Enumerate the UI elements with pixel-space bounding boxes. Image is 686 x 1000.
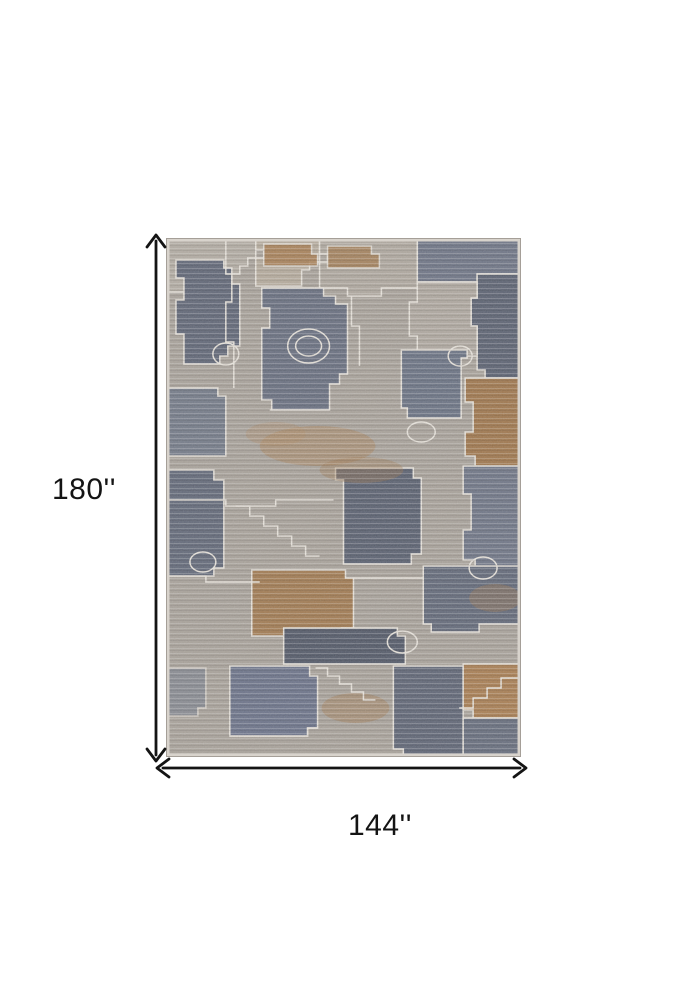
width-dimension-arrow — [157, 759, 526, 777]
product-dimension-diagram: 180'' 144'' — [0, 0, 686, 1000]
height-dimension-label: 180'' — [42, 472, 126, 508]
rug-image — [166, 238, 521, 757]
width-dimension-label: 144'' — [338, 808, 422, 844]
height-dimension-arrow — [147, 235, 165, 761]
